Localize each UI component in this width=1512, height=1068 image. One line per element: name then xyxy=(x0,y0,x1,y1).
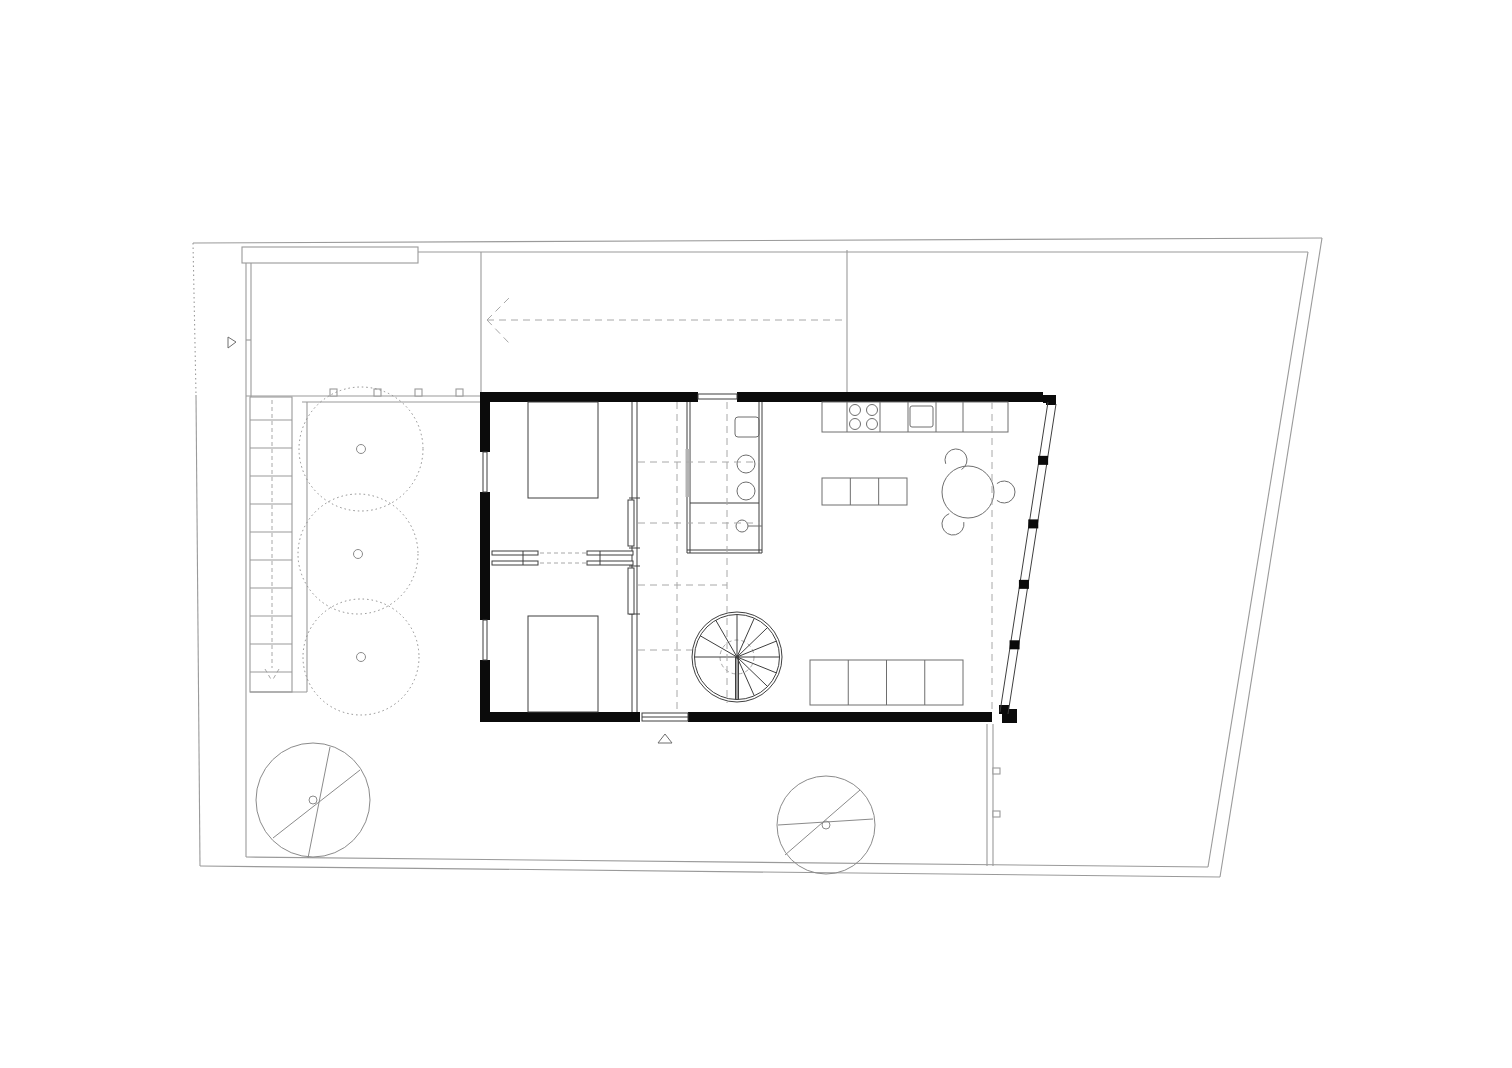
driveway xyxy=(481,250,847,392)
fence-post-tab xyxy=(456,389,463,396)
cooktop-burner xyxy=(867,405,878,416)
washbasin xyxy=(735,417,759,437)
bed xyxy=(528,616,598,712)
sofa xyxy=(810,660,963,705)
exterior-walls xyxy=(480,392,1056,723)
spiral-tread xyxy=(716,620,737,657)
garden-tree-trunk xyxy=(354,550,363,559)
curtain-wall-mullion xyxy=(1010,640,1020,649)
cooktop-burner xyxy=(850,405,861,416)
driveway-arrow-upper xyxy=(487,298,509,320)
boundary-outer-bottom xyxy=(200,866,1220,877)
sliding-door-bar-4 xyxy=(587,561,633,565)
bedroom1-door-leaf xyxy=(628,500,634,546)
boundary-outer-right xyxy=(1220,238,1322,877)
garden-tree-canopy xyxy=(303,599,419,715)
boundary-outer-left xyxy=(196,395,200,866)
curtain-wall xyxy=(1000,402,1056,714)
spiral-stair xyxy=(692,612,782,702)
partitions xyxy=(492,402,762,712)
wall-bottom-left-segment xyxy=(480,712,640,722)
driveway-arrow-lower xyxy=(487,320,509,343)
fence-post-tab xyxy=(415,389,422,396)
sliding-door-bar-1 xyxy=(492,551,538,555)
cooktop-burner xyxy=(850,419,861,430)
bedroom2-door-leaf xyxy=(628,568,634,614)
entrance-marker-icon xyxy=(658,734,672,743)
garden-trees xyxy=(298,387,423,715)
site-boundary xyxy=(193,238,1322,877)
window-west-upper xyxy=(483,452,487,492)
kitchen-island xyxy=(822,478,907,505)
existing-tree-branch xyxy=(273,770,360,838)
curtain-wall-glass-inner xyxy=(1000,402,1048,712)
windows xyxy=(483,394,737,721)
fixture-bowl-upper xyxy=(737,455,755,473)
existing-tree-trunk xyxy=(309,796,317,804)
wall-west-upper xyxy=(480,392,490,452)
wall-top-right-segment xyxy=(737,392,1043,402)
spiral-newel-post xyxy=(735,655,738,658)
spiral-tread xyxy=(700,636,737,657)
floor-plan-drawing xyxy=(0,0,1512,1068)
kitchen-sink xyxy=(910,406,933,427)
curtain-wall-mullion xyxy=(1028,519,1038,528)
boundary-outer-top xyxy=(193,238,1322,243)
garden-tree-trunk xyxy=(357,445,366,454)
wall-top-left-segment xyxy=(480,392,698,402)
street-wall-band xyxy=(242,247,418,263)
garden-wall-tab xyxy=(993,811,1000,817)
site-entry-arrow-icon xyxy=(228,337,236,348)
wall-west-middle xyxy=(480,492,490,620)
existing-tree-canopy xyxy=(256,743,370,857)
stair-arrow-left xyxy=(265,669,272,681)
floor-plan-canvas xyxy=(0,0,1512,1068)
bath-fixtures xyxy=(735,417,762,532)
boundary-inner-right xyxy=(1208,252,1308,867)
sliding-door-bar-3 xyxy=(587,551,633,555)
garden-wall-tab xyxy=(993,768,1000,774)
shower-drain xyxy=(736,520,748,532)
garden-wall-east xyxy=(987,724,1000,866)
fixture-bowl-lower xyxy=(737,482,755,500)
kitchen xyxy=(822,402,1008,505)
garden-tree-canopy xyxy=(298,494,418,614)
garden-beds xyxy=(246,389,480,692)
spiral-tread xyxy=(737,657,768,687)
core-door-strip xyxy=(686,449,690,497)
stair-rails xyxy=(250,397,292,692)
beds xyxy=(528,402,598,712)
dashed-guides xyxy=(638,402,992,710)
dining-chair-arc-3 xyxy=(997,481,1015,503)
garden-tree-trunk xyxy=(357,653,366,662)
boundary-inner-bottom xyxy=(246,857,1208,867)
dining xyxy=(942,449,1015,535)
existing-trees xyxy=(256,743,875,874)
existing-tree-canopy xyxy=(777,776,875,874)
window-north-hall xyxy=(698,394,737,399)
window-west-lower xyxy=(483,620,487,660)
curtain-wall-glass-outer xyxy=(1008,404,1056,714)
garden-stair xyxy=(250,397,292,692)
cooktop-burner xyxy=(867,419,878,430)
dining-table xyxy=(942,466,994,518)
curtain-wall-mullion xyxy=(1019,580,1029,589)
boundary-outer-left-dotted xyxy=(193,243,196,395)
wall-bottom-right-segment xyxy=(688,712,992,722)
stair-arrow-right xyxy=(272,669,279,681)
curtain-wall-mullion xyxy=(1038,456,1048,465)
bed xyxy=(528,402,598,498)
spiral-tread xyxy=(737,627,768,657)
garden-tree-canopy xyxy=(299,387,423,511)
sliding-door-bar-2 xyxy=(492,561,538,565)
